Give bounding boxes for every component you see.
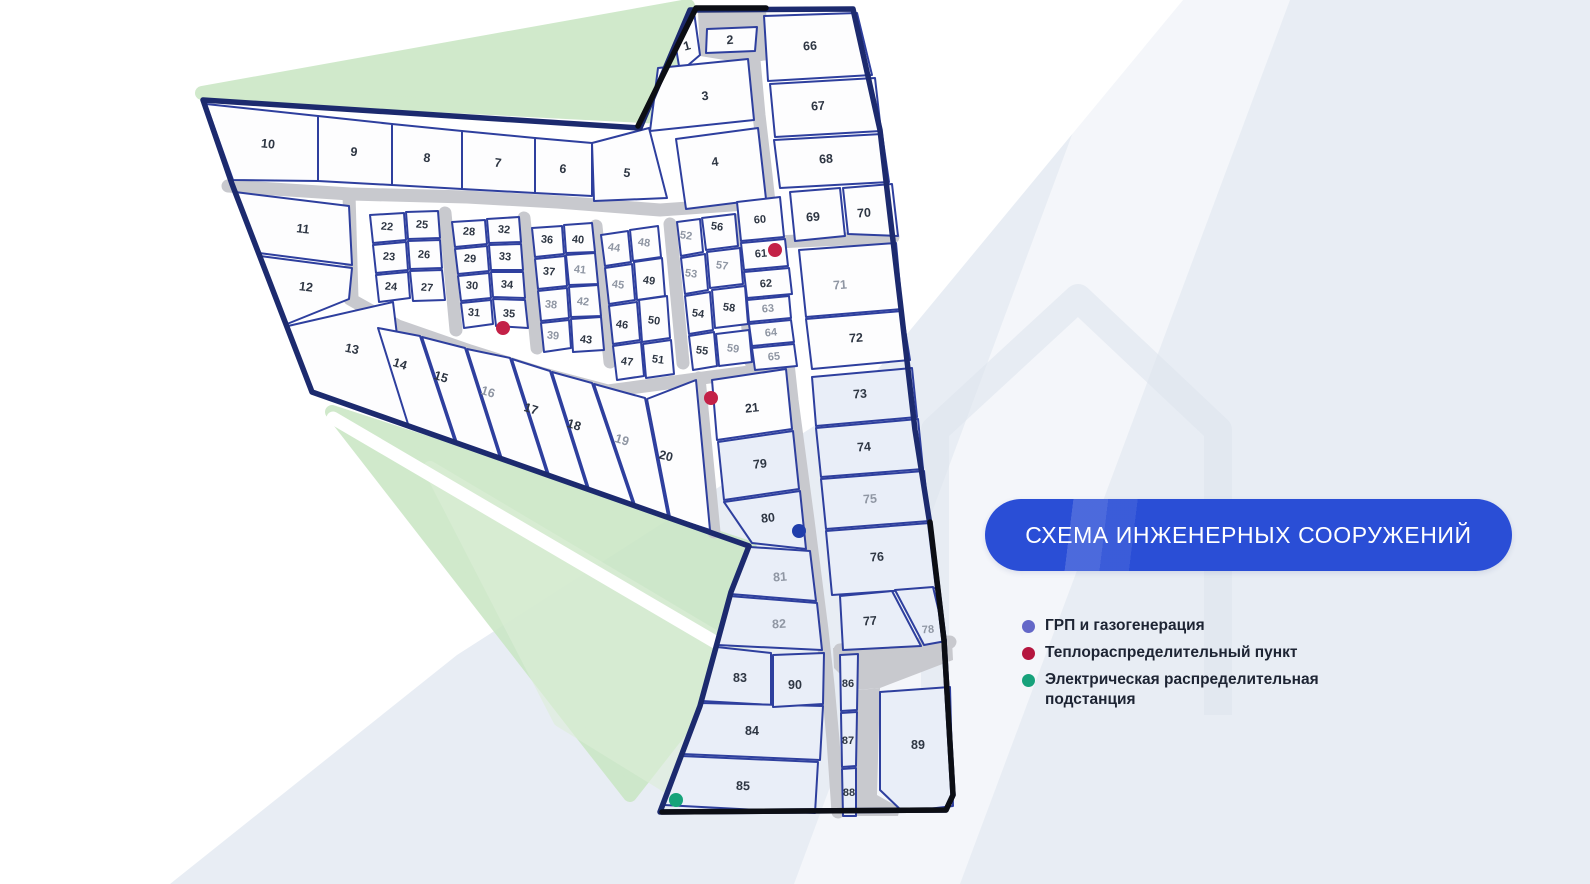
plot-4 [676,128,766,209]
plot-label-50: 50 [647,314,661,328]
plot-label-49: 49 [642,274,656,288]
plot-label-82: 82 [772,617,787,632]
plot-label-77: 77 [863,614,878,629]
scheme-title-banner: СХЕМА ИНЖЕНЕРНЫХ СООРУЖЕНИЙ [985,499,1512,571]
plot-label-85: 85 [736,779,750,793]
plot-label-40: 40 [571,233,584,246]
plot-label-61: 61 [754,247,767,260]
plot-label-2: 2 [726,33,734,47]
poi-heat-point-61 [768,243,782,257]
plot-label-52: 52 [679,229,693,243]
plot-label-35: 35 [502,307,515,320]
poi-gas-point-80 [792,524,806,538]
plot-label-71: 71 [833,278,848,293]
plot-label-89: 89 [911,738,925,752]
plot-label-51: 51 [651,353,665,367]
plot-label-10: 10 [260,136,275,151]
plot-label-58: 58 [722,301,736,315]
plot-label-69: 69 [806,210,821,225]
plot-label-81: 81 [773,570,788,585]
plot-label-24: 24 [384,280,398,293]
plot-label-42: 42 [576,295,589,308]
plot-label-26: 26 [417,248,430,261]
plot-label-34: 34 [500,278,514,291]
plot-label-66: 66 [803,39,818,54]
plot-label-84: 84 [745,724,759,738]
plot-label-64: 64 [764,326,778,339]
engineering-scheme-page: 1234567891011121314151617181920212223242… [0,0,1590,884]
plot-label-39: 39 [546,329,559,342]
plot-label-45: 45 [611,278,625,292]
substation-dot-icon [1022,674,1035,687]
plot-label-11: 11 [296,221,311,237]
poi-substation-85 [669,793,683,807]
legend-item-gas: ГРП и газогенерация [1022,616,1392,636]
legend-label-heat: Теплораспределительный пункт [1045,643,1298,663]
plot-label-41: 41 [573,263,586,276]
plot-label-88: 88 [843,787,855,799]
plot-label-46: 46 [615,318,629,332]
plot-label-86: 86 [842,678,854,690]
plot-label-33: 33 [498,250,511,263]
plot-label-70: 70 [857,206,872,221]
plot-label-28: 28 [462,225,475,238]
plot-label-67: 67 [811,99,826,114]
plot-label-31: 31 [467,306,480,319]
plot-label-56: 56 [710,220,724,234]
plot-11 [235,192,352,265]
legend-label-substation: Электрическая распределительная подстанц… [1045,670,1375,710]
plot-label-25: 25 [415,218,428,231]
poi-heat-point-21 [704,391,718,405]
plot-label-76: 76 [870,550,885,565]
plot-label-90: 90 [788,678,802,692]
green-wedge-top [202,6,688,117]
plot-label-75: 75 [863,492,878,507]
plot-label-13: 13 [344,341,361,358]
plot-label-29: 29 [463,252,476,265]
plot-67 [770,78,881,137]
site-map: 1234567891011121314151617181920212223242… [0,0,1590,884]
plot-label-59: 59 [726,342,740,356]
plot-label-62: 62 [759,277,772,290]
plot-label-38: 38 [544,298,557,311]
plot-5 [592,128,667,201]
legend-item-substation: Электрическая распределительная подстанц… [1022,670,1392,710]
heat-dot-icon [1022,647,1035,660]
plot-label-21: 21 [744,400,759,415]
plot-label-79: 79 [752,456,767,471]
plot-label-12: 12 [298,279,314,295]
plot-label-22: 22 [380,220,393,233]
plot-label-83: 83 [733,671,747,685]
legend-item-heat: Теплораспределительный пункт [1022,643,1392,663]
plot-label-55: 55 [695,344,709,358]
legend-label-gas: ГРП и газогенерация [1045,616,1205,636]
gas-dot-icon [1022,620,1035,633]
scheme-title: СХЕМА ИНЖЕНЕРНЫХ СООРУЖЕНИЙ [1025,522,1471,549]
plot-82 [717,596,822,650]
plot-label-57: 57 [715,259,729,273]
plot-label-87: 87 [842,735,854,747]
plot-label-53: 53 [684,267,698,281]
plot-label-78: 78 [921,624,934,637]
plot-label-47: 47 [620,355,634,369]
plot-label-37: 37 [542,265,555,278]
plot-label-80: 80 [760,510,775,525]
plot-71 [799,243,902,317]
plot-label-27: 27 [420,281,433,294]
poi-heat-point-35 [496,321,510,335]
plot-label-72: 72 [849,331,864,346]
legend: ГРП и газогенерация Теплораспределительн… [1022,616,1392,717]
plot-label-48: 48 [637,236,651,250]
plot-label-32: 32 [497,223,510,236]
plot-label-65: 65 [767,350,780,363]
plot-label-43: 43 [579,333,592,346]
plot-label-60: 60 [753,213,766,226]
plot-label-63: 63 [761,302,774,315]
plot-label-74: 74 [857,440,872,455]
plot-label-73: 73 [853,387,868,402]
plot-label-68: 68 [819,152,834,167]
plot-label-30: 30 [465,279,478,292]
plot-label-36: 36 [540,233,553,246]
plot-label-23: 23 [382,250,395,263]
